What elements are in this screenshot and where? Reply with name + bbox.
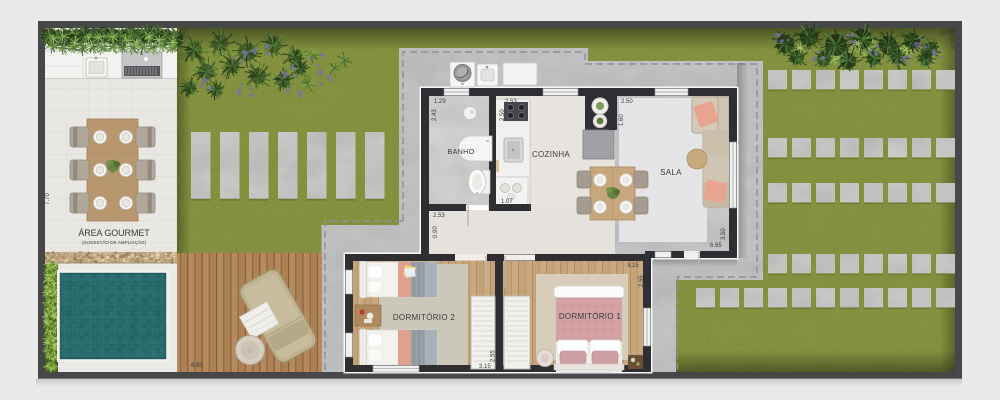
svg-text:6.80: 6.80 [191, 363, 203, 369]
svg-text:7.70: 7.70 [45, 193, 51, 205]
svg-text:ÁREA GOURMET: ÁREA GOURMET [78, 228, 150, 238]
svg-text:3.50: 3.50 [721, 228, 727, 240]
svg-text:2.43: 2.43 [432, 109, 438, 121]
svg-text:1.29: 1.29 [434, 99, 446, 105]
svg-text:DORMITÓRIO 2: DORMITÓRIO 2 [393, 313, 456, 322]
svg-text:SALA: SALA [660, 168, 682, 177]
svg-text:2.50: 2.50 [500, 109, 506, 121]
svg-text:BANHO: BANHO [447, 147, 474, 156]
svg-text:2.55: 2.55 [639, 275, 645, 287]
svg-text:2.55: 2.55 [491, 350, 497, 362]
svg-text:COZINHA: COZINHA [532, 150, 570, 159]
svg-text:0.90: 0.90 [433, 226, 439, 238]
svg-text:(SUGESTÃO DE AMPLIAÇÃO): (SUGESTÃO DE AMPLIAÇÃO) [82, 239, 147, 245]
svg-text:DORMITÓRIO 1: DORMITÓRIO 1 [559, 312, 622, 321]
svg-text:6.65: 6.65 [710, 243, 722, 249]
svg-text:3.15: 3.15 [479, 364, 491, 370]
svg-text:3.15: 3.15 [627, 263, 639, 269]
svg-text:8.00: 8.00 [951, 37, 957, 49]
svg-text:2.53: 2.53 [433, 213, 445, 219]
svg-text:20.00: 20.00 [940, 30, 956, 36]
svg-text:2.53: 2.53 [505, 99, 517, 105]
svg-text:1.07: 1.07 [501, 199, 513, 205]
svg-text:1.60: 1.60 [619, 114, 625, 126]
svg-text:2.50: 2.50 [621, 99, 633, 105]
